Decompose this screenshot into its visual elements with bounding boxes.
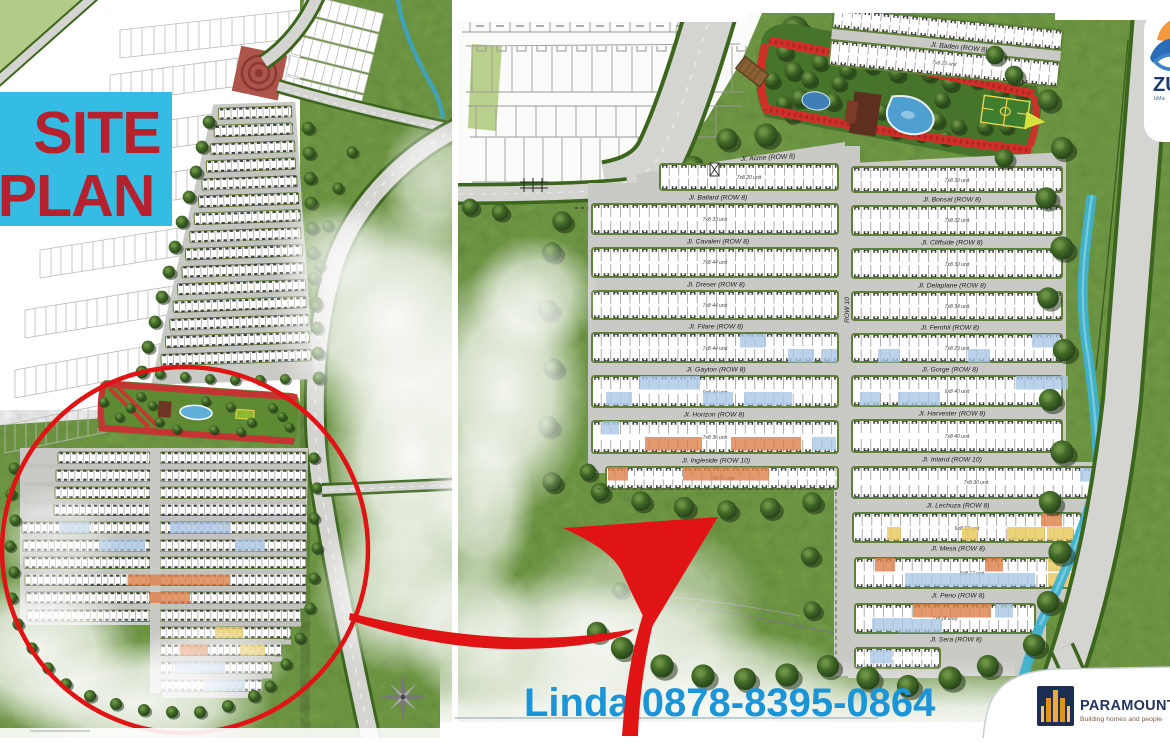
svg-text:Jl. Gorge (ROW 8): Jl. Gorge (ROW 8)	[921, 367, 978, 374]
svg-text:PARAMOUNT: PARAMOUNT	[1080, 698, 1170, 714]
svg-text:7x8 44 unit: 7x8 44 unit	[703, 346, 728, 352]
svg-text:Building homes and people: Building homes and people	[1080, 716, 1162, 723]
svg-text:ZU: ZU	[1153, 74, 1170, 96]
svg-text:7x8 44 unit: 7x8 44 unit	[703, 260, 728, 266]
svg-text:6x8 40 unit: 6x8 40 unit	[945, 389, 970, 395]
svg-text:Jl. Gayton (ROW 8): Jl. Gayton (ROW 8)	[685, 367, 745, 374]
svg-text:SITE: SITE	[33, 100, 160, 166]
svg-text:Jl. Harvester (ROW 8): Jl. Harvester (ROW 8)	[918, 411, 986, 418]
svg-text:PLAN: PLAN	[0, 163, 154, 229]
svg-text:Jl. Cavaleri (ROW 8): Jl. Cavaleri (ROW 8)	[686, 239, 749, 246]
svg-text:7x8 33 unit: 7x8 33 unit	[703, 217, 728, 223]
svg-text:Jl. Fernhil (ROW 8): Jl. Fernhil (ROW 8)	[920, 325, 979, 332]
svg-text:Jl. Filare (ROW 8): Jl. Filare (ROW 8)	[688, 324, 743, 331]
svg-text:Jl. Ingleside (ROW 10): Jl. Ingleside (ROW 10)	[681, 458, 750, 465]
svg-text:Jl. Delaplane (ROW 8): Jl. Delaplane (ROW 8)	[917, 283, 986, 290]
svg-text:Jl. Horizon (ROW 8): Jl. Horizon (ROW 8)	[683, 412, 745, 419]
svg-text:7x8 20 unit: 7x8 20 unit	[737, 175, 762, 181]
svg-text:Jl. Bonsal (ROW 8): Jl. Bonsal (ROW 8)	[922, 197, 981, 204]
svg-text:bMa: bMa	[1154, 96, 1166, 102]
svg-text:Jl. Cliffside (ROW 8): Jl. Cliffside (ROW 8)	[920, 240, 983, 247]
svg-text:Jl. Dreser (ROW 8): Jl. Dreser (ROW 8)	[686, 282, 745, 289]
svg-text:7x8 30 unit: 7x8 30 unit	[964, 480, 989, 486]
svg-text:Jl. Sera (ROW 8): Jl. Sera (ROW 8)	[929, 637, 982, 644]
svg-text:7x8 44 unit: 7x8 44 unit	[703, 303, 728, 309]
svg-text:Jl. Bailard (ROW 8): Jl. Bailard (ROW 8)	[688, 195, 748, 202]
svg-text:7x8 30 unit: 7x8 30 unit	[945, 178, 970, 184]
svg-text:7x8 36 unit: 7x8 36 unit	[703, 435, 728, 441]
svg-text:7x8 29 unit: 7x8 29 unit	[945, 346, 970, 352]
svg-text:Jl. Mesa (ROW 8): Jl. Mesa (ROW 8)	[930, 546, 985, 553]
svg-text:Linda 0878-8395-0864: Linda 0878-8395-0864	[524, 681, 936, 725]
svg-text:Jl. Inland (ROW 10): Jl. Inland (ROW 10)	[921, 457, 982, 464]
svg-text:7x8 40 unit: 7x8 40 unit	[945, 434, 970, 440]
svg-text:7x8 34 unit: 7x8 34 unit	[945, 304, 970, 310]
svg-text:ROW 10: ROW 10	[844, 297, 851, 323]
svg-text:7x8 30 unit: 7x8 30 unit	[945, 262, 970, 268]
svg-text:7x8 32 unit: 7x8 32 unit	[945, 218, 970, 224]
svg-text:Jl. Peno (ROW 8): Jl. Peno (ROW 8)	[930, 593, 984, 600]
svg-text:Jl. Lechuza (ROW 8): Jl. Lechuza (ROW 8)	[925, 503, 989, 510]
